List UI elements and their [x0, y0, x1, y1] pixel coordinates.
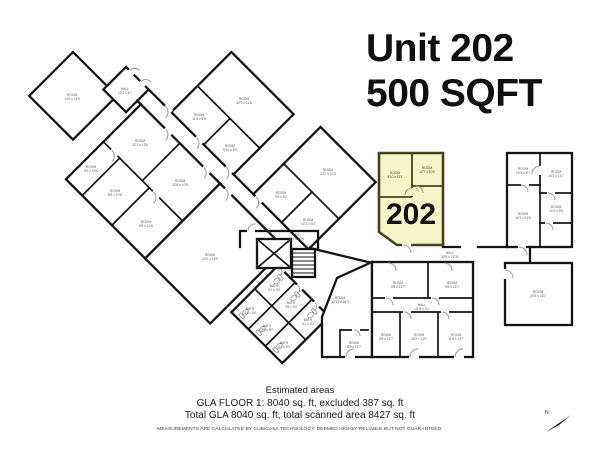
- footer-heading: Estimated areas: [0, 385, 600, 396]
- unit-title-line2: 500 SQFT: [366, 71, 542, 116]
- room-label: ROOM8'5 x 12'7: [379, 333, 393, 341]
- footer-gla-line: GLA FLOOR 1: 8040 sq. ft, excluded 387 s…: [0, 398, 600, 410]
- floorplan-page: 202: [0, 0, 600, 463]
- footer: Estimated areas GLA FLOOR 1: 8040 sq. ft…: [0, 385, 600, 432]
- room-label: ROOM10'1 x 9'7: [516, 167, 530, 175]
- room-label: HALL30'9 x 23'10: [441, 251, 459, 259]
- room-label: ROOM11'6 x 8'9: [192, 113, 206, 121]
- room-label: ROOM9'2 x 10'6: [84, 165, 98, 173]
- unit-title-line1: Unit 202: [366, 26, 542, 71]
- unit-number-label: 202: [386, 198, 436, 231]
- unit-202: 202: [379, 153, 443, 253]
- room-label: ROOM8'5 x 10'6: [108, 189, 122, 197]
- footer-disclaimer: MEASUREMENTS ARE CALCULATED BY CUBICASA …: [0, 427, 600, 432]
- topright-walls: [507, 153, 572, 255]
- room-label: ROOM9'10 x 8'9: [223, 144, 237, 152]
- room-label: ROOM9'8 x 10'6: [139, 220, 153, 228]
- room-label: ROOM10'2 x 9'5: [549, 205, 563, 213]
- room-label: ROOM8'9 x 11'7: [347, 341, 361, 349]
- room-label: ROOM9'5 x 9'2: [275, 191, 287, 199]
- room-label: ROOM9'8 x 12'7: [391, 281, 405, 289]
- room-label: ROOM10'1 x 9'2: [301, 218, 315, 226]
- unit-title: Unit 202 500 SQFT: [366, 26, 542, 116]
- room-label: ROOM9'6 x 12'7: [445, 281, 459, 289]
- footer-total-line: Total GLA 8040 sq. ft, total scanned are…: [0, 410, 600, 422]
